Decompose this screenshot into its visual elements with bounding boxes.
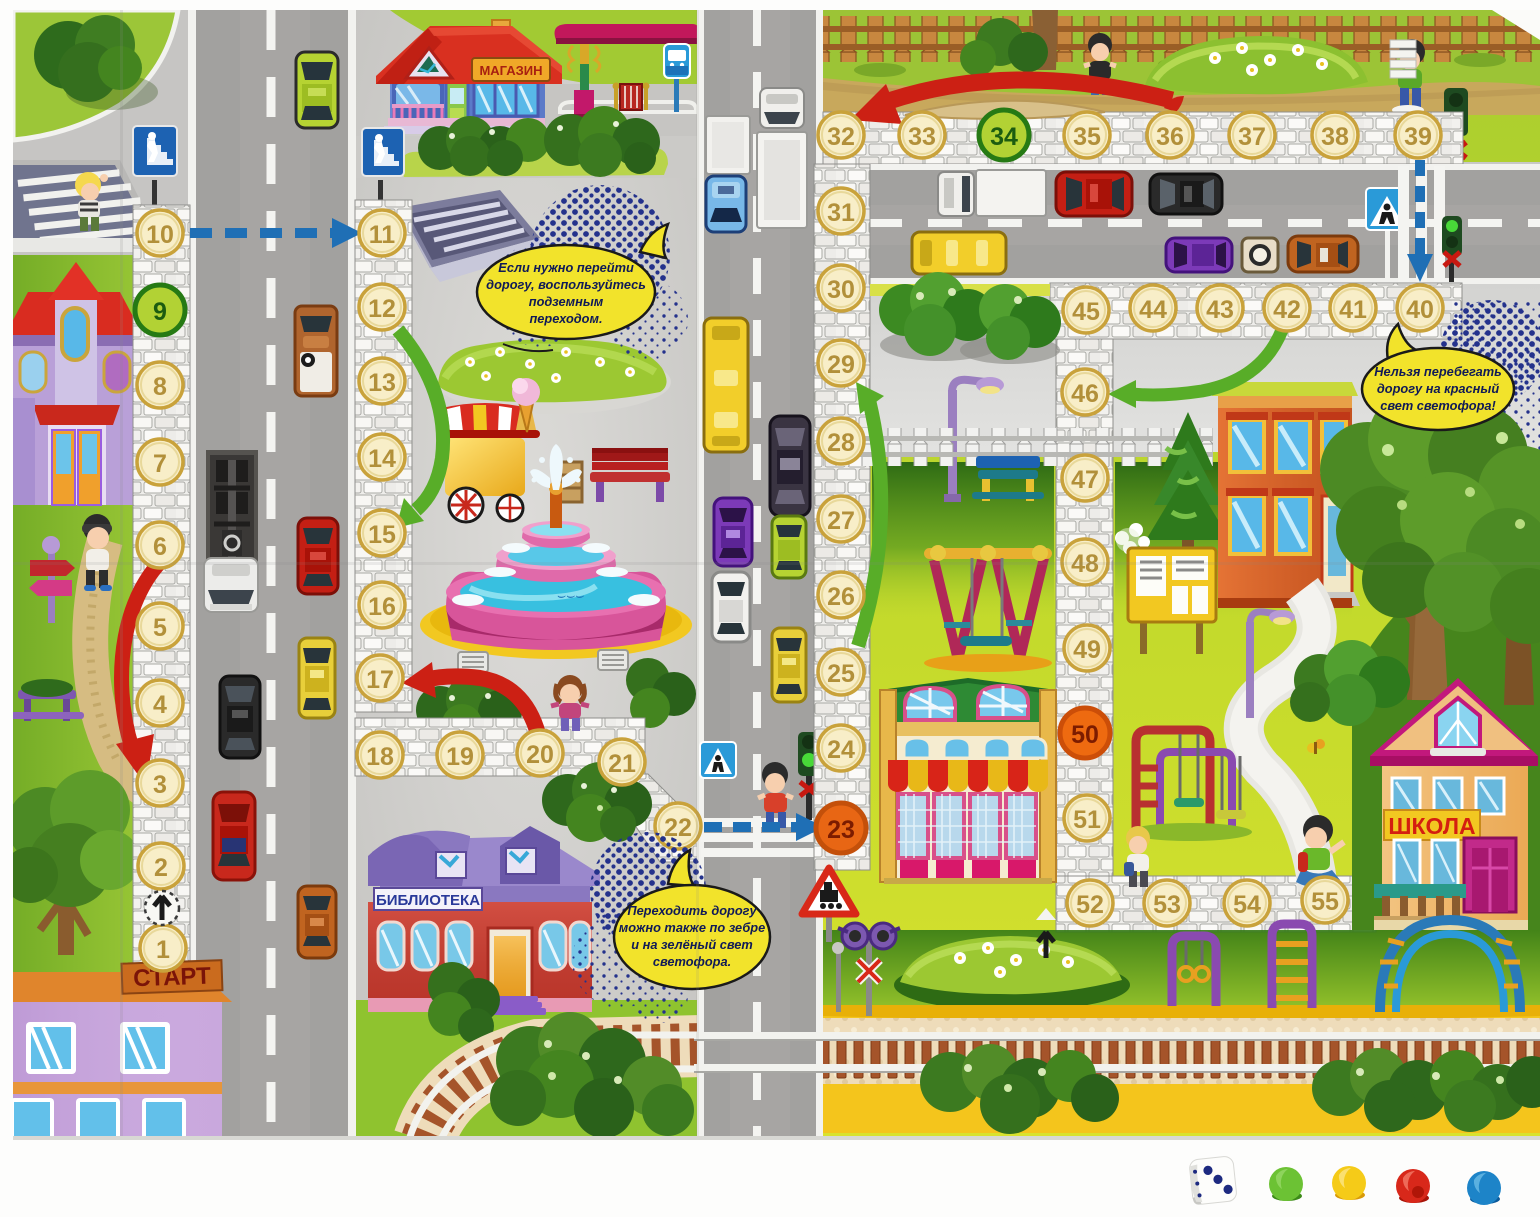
svg-text:31: 31 bbox=[827, 199, 855, 227]
svg-text:51: 51 bbox=[1073, 806, 1101, 834]
svg-text:10: 10 bbox=[146, 221, 174, 249]
svg-text:26: 26 bbox=[827, 583, 855, 611]
svg-text:подземным: подземным bbox=[529, 294, 604, 309]
svg-text:8: 8 bbox=[153, 373, 167, 401]
svg-text:Переходить дорогу: Переходить дорогу bbox=[627, 903, 757, 918]
svg-text:⌣⌣⌣: ⌣⌣⌣ bbox=[556, 587, 584, 603]
svg-text:47: 47 bbox=[1071, 466, 1099, 494]
svg-text:36: 36 bbox=[1156, 123, 1184, 151]
svg-text:21: 21 bbox=[608, 750, 636, 778]
svg-text:32: 32 bbox=[827, 123, 855, 151]
svg-text:11: 11 bbox=[369, 221, 396, 249]
svg-text:МАГАЗИН: МАГАЗИН bbox=[479, 63, 542, 78]
svg-text:27: 27 bbox=[827, 507, 855, 535]
svg-text:17: 17 bbox=[366, 666, 394, 694]
svg-text:42: 42 bbox=[1273, 296, 1301, 324]
svg-text:5: 5 bbox=[153, 614, 167, 642]
svg-text:Нельзя перебегать: Нельзя перебегать bbox=[1374, 364, 1502, 379]
svg-text:30: 30 bbox=[827, 276, 855, 304]
svg-text:54: 54 bbox=[1233, 891, 1261, 919]
svg-text:свет светофора!: свет светофора! bbox=[1380, 398, 1496, 413]
svg-text:9: 9 bbox=[153, 298, 167, 326]
svg-text:12: 12 bbox=[368, 295, 396, 323]
svg-text:40: 40 bbox=[1406, 296, 1434, 324]
svg-text:переходом.: переходом. bbox=[529, 311, 602, 326]
svg-text:44: 44 bbox=[1139, 296, 1167, 324]
svg-text:3: 3 bbox=[153, 771, 167, 799]
svg-text:38: 38 bbox=[1321, 123, 1349, 151]
svg-text:25: 25 bbox=[827, 660, 855, 688]
svg-text:37: 37 bbox=[1238, 123, 1266, 151]
svg-text:и на зелёный свет: и на зелёный свет bbox=[631, 937, 753, 952]
svg-text:41: 41 bbox=[1339, 296, 1367, 324]
svg-text:45: 45 bbox=[1072, 298, 1100, 326]
svg-text:35: 35 bbox=[1073, 123, 1101, 151]
svg-text:дорогу, воспользуйтесь: дорогу, воспользуйтесь bbox=[486, 277, 646, 292]
svg-text:БИБЛИОТЕКА: БИБЛИОТЕКА bbox=[376, 892, 480, 909]
svg-text:28: 28 bbox=[827, 429, 855, 457]
svg-text:49: 49 bbox=[1073, 636, 1101, 664]
svg-text:14: 14 bbox=[368, 445, 396, 473]
svg-text:39: 39 bbox=[1404, 123, 1432, 151]
svg-text:18: 18 bbox=[366, 743, 394, 771]
svg-text:46: 46 bbox=[1071, 380, 1099, 408]
svg-text:можно также по зебре: можно также по зебре bbox=[619, 920, 765, 935]
svg-text:23: 23 bbox=[827, 816, 855, 844]
svg-text:1: 1 bbox=[156, 936, 170, 964]
svg-text:52: 52 bbox=[1076, 891, 1104, 919]
svg-text:43: 43 bbox=[1206, 296, 1234, 324]
svg-text:55: 55 bbox=[1311, 888, 1339, 916]
svg-text:34: 34 bbox=[990, 123, 1018, 151]
svg-text:Если нужно перейти: Если нужно перейти bbox=[498, 260, 634, 275]
svg-text:24: 24 bbox=[827, 736, 855, 764]
svg-text:2: 2 bbox=[154, 854, 168, 882]
svg-text:53: 53 bbox=[1153, 891, 1181, 919]
svg-text:6: 6 bbox=[153, 533, 167, 561]
svg-text:4: 4 bbox=[153, 691, 167, 719]
svg-text:ШКОЛА: ШКОЛА bbox=[1388, 813, 1475, 839]
svg-text:дорогу на красный: дорогу на красный bbox=[1377, 381, 1499, 396]
svg-text:7: 7 bbox=[153, 450, 167, 478]
svg-text:16: 16 bbox=[368, 593, 396, 621]
svg-text:15: 15 bbox=[368, 521, 396, 549]
svg-text:13: 13 bbox=[368, 369, 396, 397]
svg-text:светофора.: светофора. bbox=[653, 954, 731, 969]
svg-text:29: 29 bbox=[827, 351, 855, 379]
svg-text:19: 19 bbox=[446, 743, 474, 771]
svg-text:20: 20 bbox=[526, 741, 554, 769]
svg-text:50: 50 bbox=[1071, 721, 1099, 749]
svg-text:33: 33 bbox=[908, 123, 936, 151]
